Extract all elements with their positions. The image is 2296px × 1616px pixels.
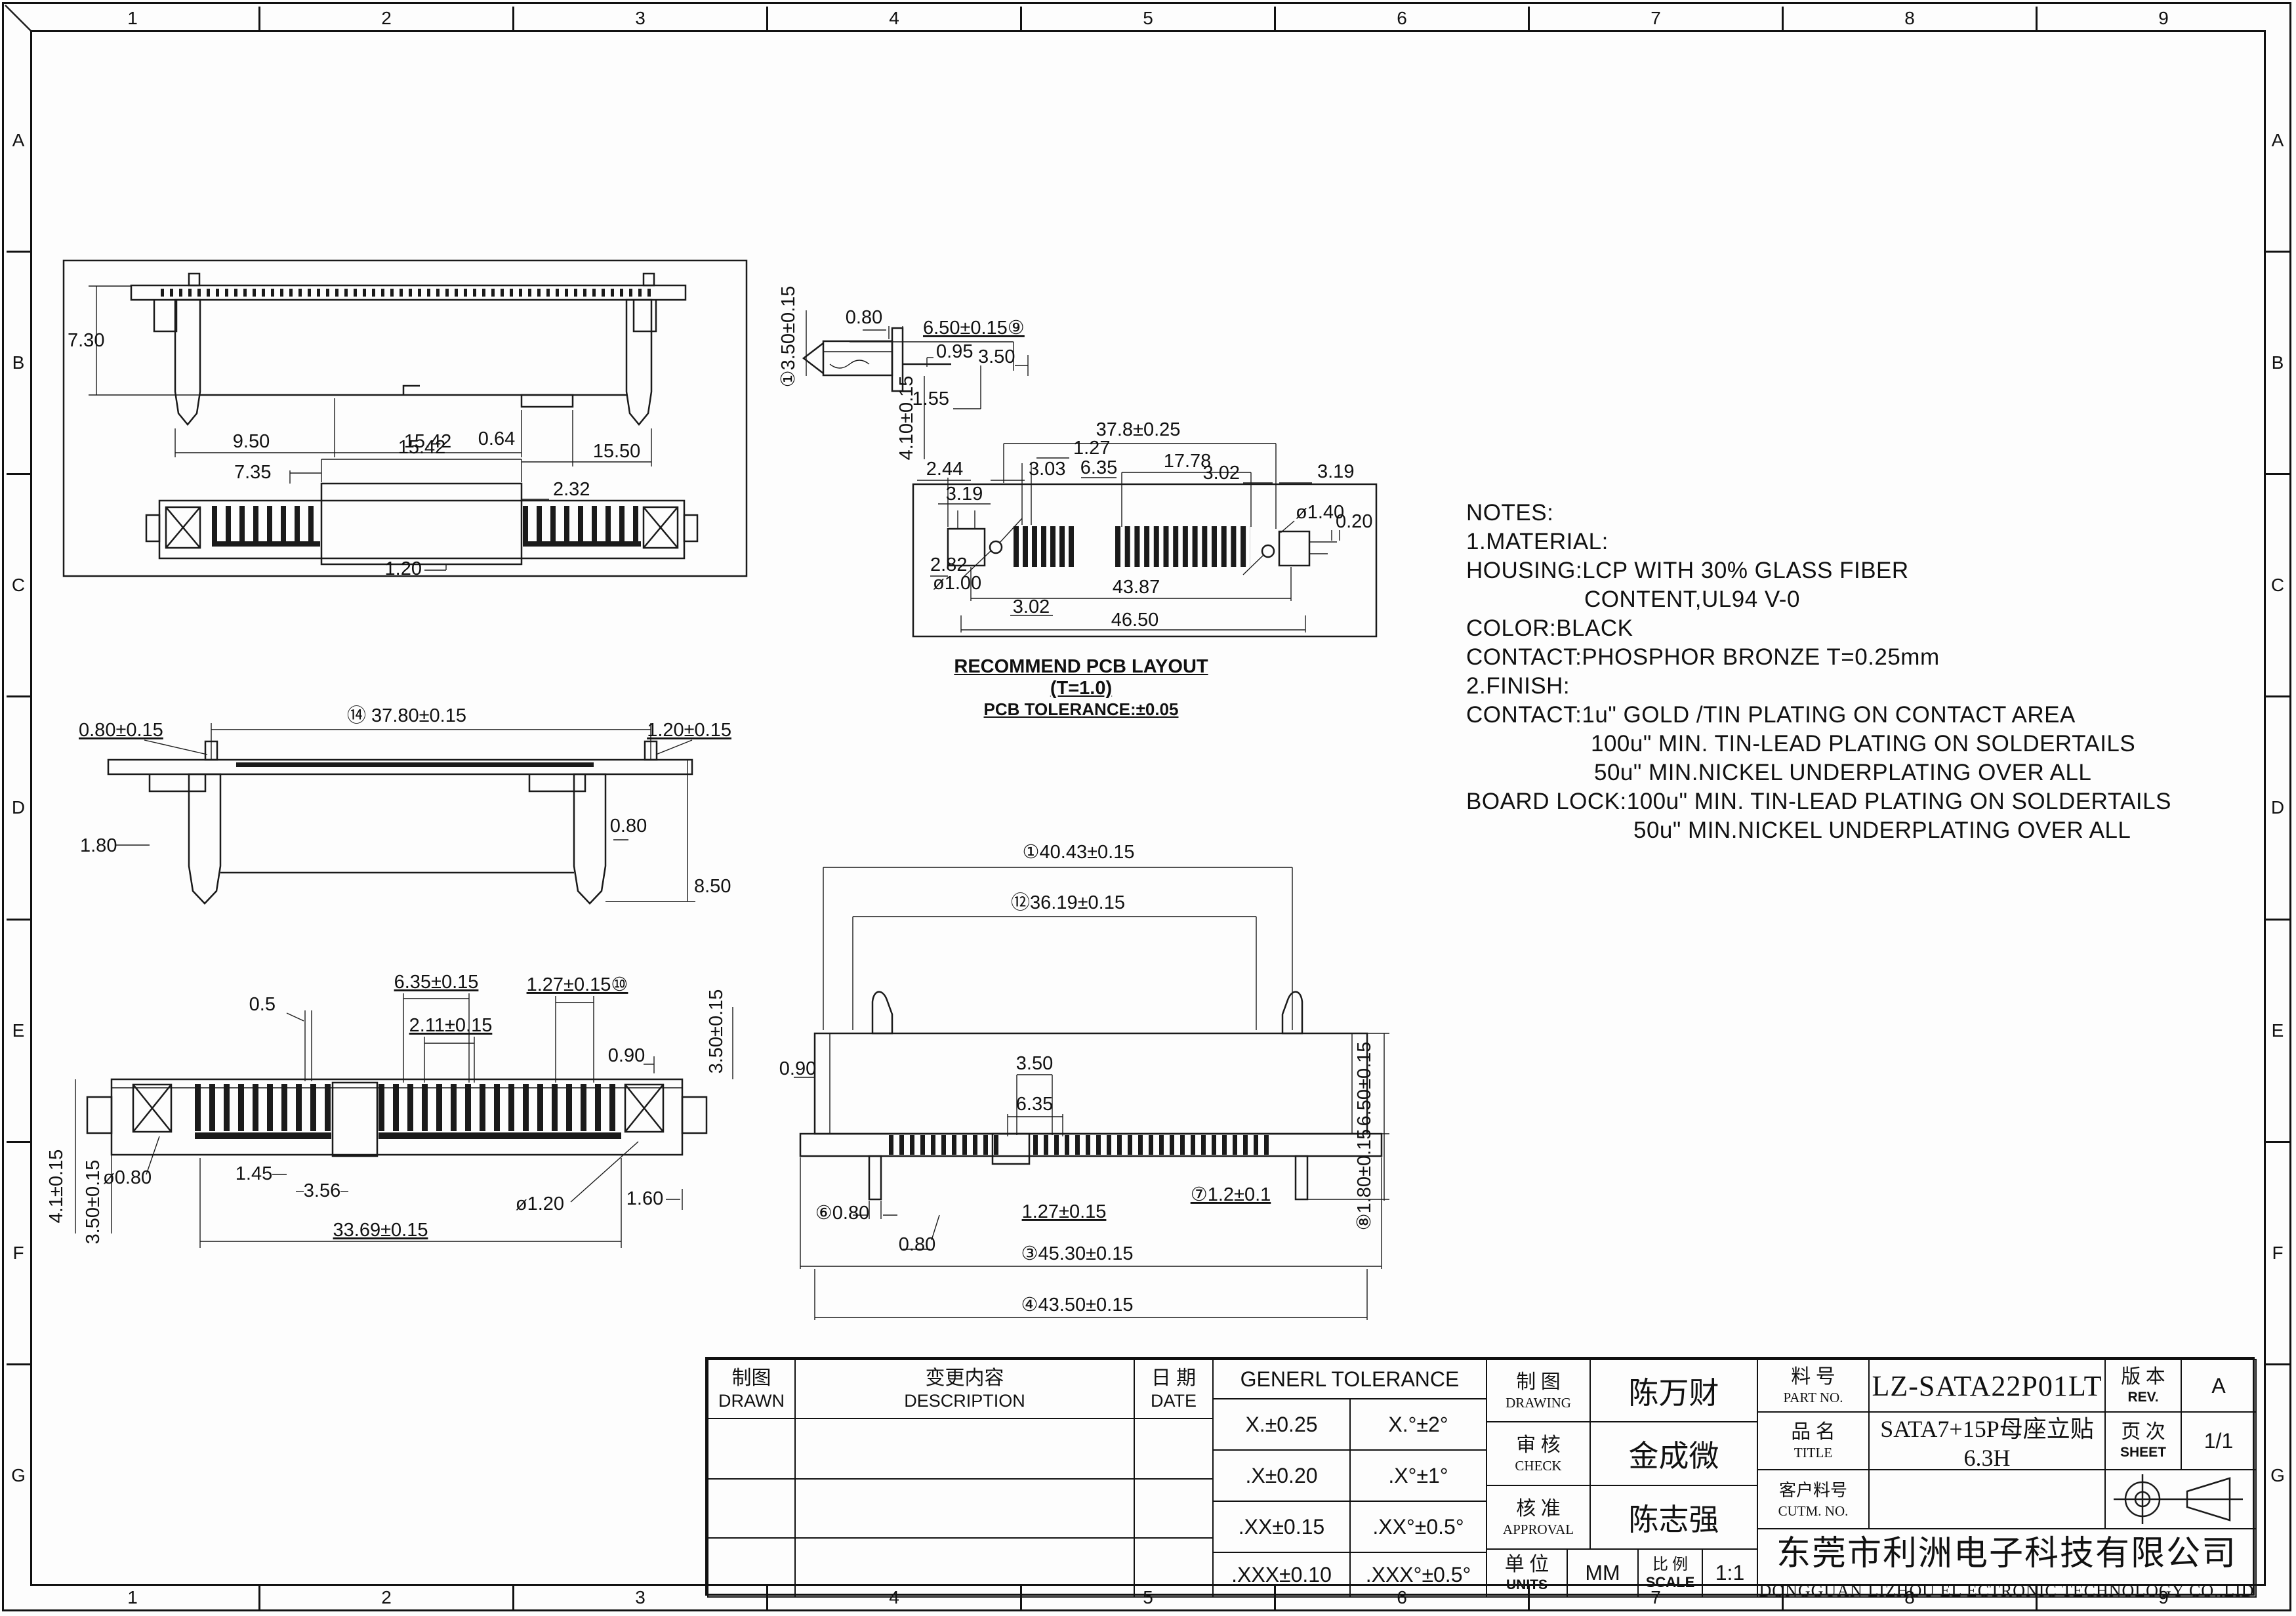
zone-col: 1: [7, 7, 258, 30]
dim-1-45: 1.45: [236, 1163, 272, 1184]
description-label-cn: 变更内容: [926, 1367, 1004, 1390]
tolerance-cell: .XX±0.15: [1212, 1501, 1351, 1553]
cutm-no-label-cn: 客户料号: [1779, 1479, 1847, 1502]
units-label: 单 位 UNITS: [1486, 1548, 1568, 1598]
zone-col: 6: [1274, 7, 1528, 30]
company-name-en: DONGGUAN LIZHOU EL ECTRONIC TECHNOLOGY C…: [1759, 1581, 2255, 1598]
check-label-cn: 审 核: [1516, 1434, 1561, 1457]
dim-dia-1-00: ø1.00: [933, 573, 981, 594]
tolerance-value: .X°±1°: [1388, 1464, 1448, 1488]
note-line: NOTES:: [1466, 499, 2240, 528]
dim-46-50: 46.50: [1111, 610, 1159, 631]
part-no-label: 料 号 PART NO.: [1757, 1359, 1870, 1413]
dim-40-43: ①40.43±0.15: [1023, 842, 1135, 863]
description-header: 变更内容 DESCRIPTION: [794, 1359, 1135, 1419]
dim-4-1: 4.1±0.15: [46, 1150, 67, 1224]
dim-7-35: 7.35: [234, 462, 271, 483]
dim-6-35: 6.35: [1016, 1094, 1053, 1115]
tolerance-header: GENERL TOLERANCE: [1212, 1359, 1487, 1399]
part-number: LZ-SATA22P01LT: [1872, 1369, 2102, 1403]
cutm-no-value: [1868, 1469, 2106, 1529]
drawn-label-en: DRAWN: [718, 1390, 785, 1411]
zone-row: G: [2266, 1363, 2289, 1586]
check-name: 金成微: [1629, 1432, 1719, 1476]
tolerance-cell: X.°±2°: [1349, 1398, 1487, 1451]
dim-3-19-right: 3.19: [1317, 461, 1354, 482]
view-pcb-layout: 37.8±0.25 1.27 3.03 6.35 17.78 3.02 3.19…: [912, 412, 1443, 645]
zone-row: A: [2266, 30, 2289, 251]
dim-1-55: 1.55: [912, 388, 949, 409]
title-label: 品 名 TITLE: [1757, 1411, 1870, 1470]
dim-0-90: 0.90: [608, 1045, 645, 1066]
note-line: 100u" MIN. TIN-LEAD PLATING ON SOLDERTAI…: [1466, 730, 2240, 758]
dim-0-5: 0.5: [249, 994, 276, 1015]
rev-label: 版 本 REV.: [2104, 1359, 2182, 1413]
dim-3-50-left: 3.50±0.15: [83, 1160, 104, 1245]
zone-columns-top: 1 2 3 4 5 6 7 8 9: [7, 7, 2289, 30]
zone-col: 4: [766, 7, 1020, 30]
dim-1-20: 1.20: [385, 558, 422, 579]
dim-2-32: 2.32: [553, 479, 590, 500]
dim-0-80: 0.80: [610, 816, 647, 837]
note-line: COLOR:BLACK: [1466, 614, 2240, 643]
units-value: MM: [1567, 1548, 1639, 1598]
tolerance-value: .X±0.20: [1245, 1464, 1317, 1488]
dim-0-20: 0.20: [1336, 511, 1372, 532]
tolerance-value: X.°±2°: [1388, 1413, 1448, 1437]
scale-label: 比 例 SCALE: [1637, 1548, 1703, 1598]
dim-0-80: 0.80: [846, 307, 882, 328]
check-label-en: CHECK: [1515, 1457, 1561, 1474]
dim-8-50: 8.50: [694, 876, 731, 897]
dim-0-64: 0.64: [478, 428, 515, 449]
revision-cell: [794, 1537, 1135, 1598]
note-line: CONTENT,UL94 V-0: [1466, 585, 2240, 614]
drawing-name: 陈万财: [1629, 1369, 1719, 1413]
dim-33-69: 33.69±0.15: [333, 1220, 428, 1241]
dim-3-56: 3.56: [304, 1180, 340, 1201]
approval-label: 核 准 APPROVAL: [1486, 1485, 1591, 1550]
part-no-value: LZ-SATA22P01LT: [1868, 1359, 2106, 1413]
dim-3-02-bottom: 3.02: [1013, 596, 1050, 617]
view-rear: 0.80±0.15 ⑭ 37.80±0.15 1.20±0.15 1.80 0.…: [39, 676, 735, 902]
tolerance-value: X.±0.25: [1245, 1413, 1317, 1437]
dim-43-87: 43.87: [1113, 577, 1160, 598]
tolerance-cell: .XXX°±0.5°: [1349, 1552, 1487, 1598]
revision: A: [2211, 1374, 2225, 1398]
drawing-value: 陈万财: [1589, 1359, 1758, 1422]
dim-15-42-front: 15.42: [398, 437, 446, 458]
zone-col: 7: [1528, 7, 1782, 30]
sheet-value: 1/1: [2181, 1411, 2257, 1470]
sheet-number: 1/1: [2204, 1429, 2233, 1453]
zone-row: C: [7, 473, 30, 695]
drawing-label-en: DRAWING: [1506, 1394, 1571, 1411]
pcb-geometry: [913, 444, 1376, 636]
dim-0-90: 0.90: [779, 1058, 816, 1079]
dim-3-50-vert: ①3.50±0.15: [778, 286, 799, 388]
scale-label-cn: 比 例: [1652, 1556, 1688, 1574]
zone-row: B: [2266, 251, 2289, 473]
dim-1-80: 1.80: [80, 835, 117, 856]
tolerance-value: .XXX±0.10: [1231, 1563, 1332, 1587]
dim-0-80: 0.80: [899, 1234, 935, 1255]
tolerance-cell: X.±0.25: [1212, 1398, 1351, 1451]
dim-0-80-pin: ⑥0.80: [815, 1203, 869, 1224]
note-line: HOUSING:LCP WITH 30% GLASS FIBER: [1466, 556, 2240, 585]
dim-3-50: 3.50: [1016, 1053, 1053, 1074]
revision-cell: [1134, 1418, 1214, 1480]
revision-cell: [707, 1478, 796, 1539]
cutm-no-label: 客户料号 CUTM. NO.: [1757, 1469, 1870, 1529]
dim-1-80: ⑧1.80±0.15: [1354, 1129, 1375, 1231]
dim-15-50: 15.50: [593, 441, 641, 462]
dim-1-20-tol: 1.20±0.15: [647, 720, 731, 741]
drawn-label-cn: 制图: [732, 1367, 771, 1390]
view-plan: 0.5 6.35±0.15 1.27±0.15⑩ 2.11±0.15 0.90 …: [49, 945, 748, 1270]
drawn-header: 制图 DRAWN: [707, 1359, 796, 1419]
part-no-label-cn: 料 号: [1791, 1365, 1835, 1389]
zone-row: D: [7, 695, 30, 918]
revision-cell: [1134, 1537, 1214, 1598]
dim-3-02-top: 3.02: [1203, 463, 1240, 484]
revision-cell: [707, 1537, 796, 1598]
pcb-caption-line1: RECOMMEND PCB LAYOUT (T=1.0): [924, 656, 1239, 699]
note-line: 2.FINISH:: [1466, 672, 2240, 701]
notes-block: NOTES: 1.MATERIAL: HOUSING:LCP WITH 30% …: [1466, 499, 2240, 845]
dim-6-35: 6.35: [1080, 457, 1117, 478]
dim-1-2: ⑦1.2±0.1: [1191, 1184, 1271, 1205]
tolerance-value: .XXX°±0.5°: [1366, 1563, 1471, 1587]
zone-row: E: [7, 919, 30, 1141]
zone-col: 8: [1782, 7, 2036, 30]
dim-2-11: 2.11±0.15: [409, 1015, 493, 1036]
description-label-en: DESCRIPTION: [904, 1390, 1025, 1411]
approval-value: 陈志强: [1589, 1485, 1758, 1550]
zone-col: 9: [2036, 7, 2289, 30]
revision-cell: [707, 1418, 796, 1480]
dim-6-50: 6.50±0.15: [1354, 1042, 1375, 1127]
part-no-label-en: PART NO.: [1784, 1389, 1843, 1406]
tolerance-title: GENERL TOLERANCE: [1240, 1367, 1460, 1392]
zone-row: A: [7, 30, 30, 251]
dim-2-44: 2.44: [926, 459, 963, 480]
zone-col: 3: [512, 7, 766, 30]
title-label-en: TITLE: [1794, 1444, 1832, 1461]
view-bottom: ①40.43±0.15 ⑫36.19±0.15 6.50±0.15 0.90 3…: [774, 781, 1391, 1332]
dim-45-30: ③45.30±0.15: [1021, 1243, 1134, 1264]
dim-0-95: 0.95: [936, 341, 973, 362]
note-line: 1.MATERIAL:: [1466, 528, 2240, 556]
zone-col: 1: [7, 1586, 258, 1609]
rev-label-en: REV.: [2127, 1389, 2158, 1406]
company-name-cn: 东莞市利洲电子科技有限公司: [1776, 1528, 2237, 1575]
zone-col: 2: [258, 7, 512, 30]
dim-3-19-left: 3.19: [946, 484, 983, 505]
dim-0-80-tol: 0.80±0.15: [79, 720, 163, 741]
rear-geometry: [108, 723, 695, 903]
dim-36-19: ⑫36.19±0.15: [1011, 892, 1125, 913]
view-overview: 7.30 9.50 15.42 0.64 15.50 15.42 7.35 2.…: [62, 259, 748, 577]
dim-dia-0-80: ø0.80: [103, 1167, 152, 1188]
revision-cell: [1134, 1478, 1214, 1539]
dim-1-27: 1.27: [1073, 438, 1110, 459]
zone-row: D: [2266, 695, 2289, 918]
dim-6-50: 6.50±0.15⑨: [923, 318, 1025, 339]
pcb-caption-line2: PCB TOLERANCE:±0.05: [924, 699, 1239, 720]
zone-row: F: [7, 1141, 30, 1363]
dim-6-35: 6.35±0.15: [394, 972, 479, 993]
tolerance-cell: .XXX±0.10: [1212, 1552, 1351, 1598]
dim-1-27: 1.27±0.15⑩: [527, 974, 628, 995]
approval-label-en: APPROVAL: [1503, 1521, 1574, 1538]
check-label: 审 核 CHECK: [1486, 1421, 1591, 1486]
drawing-sheet: 1 2 3 4 5 6 7 8 9 1 2 3 4 5 6 7 8 9 A B …: [0, 0, 2296, 1616]
note-line: 50u" MIN.NICKEL UNDERPLATING OVER ALL: [1466, 816, 2240, 845]
sheet-label-cn: 页 次: [2121, 1420, 2165, 1444]
rev-value: A: [2181, 1359, 2257, 1413]
zone-rows-right: A B C D E F G: [2266, 30, 2289, 1586]
dim-9-50: 9.50: [233, 431, 270, 452]
date-label-cn: 日 期: [1151, 1367, 1196, 1390]
cutm-no-label-en: CUTM. NO.: [1778, 1502, 1849, 1520]
units-mm: MM: [1585, 1561, 1620, 1585]
tolerance-value: .XX°±0.5°: [1372, 1515, 1464, 1539]
part-title: SATA7+15P母座立贴6.3H: [1870, 1411, 2104, 1470]
zone-row: C: [2266, 473, 2289, 695]
title-value: SATA7+15P母座立贴6.3H: [1868, 1411, 2106, 1470]
drawing-label: 制 图 DRAWING: [1486, 1359, 1591, 1422]
rev-label-cn: 版 本: [2121, 1365, 2165, 1389]
projection-symbol-cell: [2104, 1469, 2257, 1529]
overview-geometry: [64, 260, 747, 576]
note-line: CONTACT:1u" GOLD /TIN PLATING ON CONTACT…: [1466, 701, 2240, 730]
dim-37-80: ⑭ 37.80±0.15: [347, 705, 466, 726]
note-line: CONTACT:PHOSPHOR BRONZE T=0.25mm: [1466, 643, 2240, 672]
approval-label-cn: 核 准: [1516, 1497, 1561, 1521]
tolerance-cell: .X°±1°: [1349, 1449, 1487, 1502]
scale-value: 1:1: [1702, 1548, 1758, 1598]
zone-rows-left: A B C D E F G: [7, 30, 30, 1586]
date-header: 日 期 DATE: [1134, 1359, 1214, 1419]
scale-ratio: 1:1: [1715, 1561, 1744, 1585]
dim-3-50-right: 3.50±0.15: [706, 989, 727, 1074]
revision-cell: [794, 1478, 1135, 1539]
check-value: 金成微: [1589, 1421, 1758, 1486]
plan-geometry: [75, 993, 733, 1248]
approval-name: 陈志强: [1629, 1496, 1719, 1539]
dim-7-30: 7.30: [68, 330, 104, 351]
zone-col: 2: [258, 1586, 512, 1609]
scale-label-en: SCALE: [1646, 1574, 1695, 1591]
dim-3-50: 3.50: [978, 346, 1015, 367]
dim-dia-1-20: ø1.20: [516, 1193, 564, 1214]
sheet-label-en: SHEET: [2120, 1444, 2166, 1461]
units-label-en: UNITS: [1506, 1577, 1548, 1594]
title-block: 制图 DRAWN 变更内容 DESCRIPTION 日 期 DATE GENER…: [705, 1357, 2255, 1596]
revision-cell: [794, 1418, 1135, 1480]
tolerance-cell: .XX°±0.5°: [1349, 1501, 1487, 1553]
units-label-cn: 单 位: [1505, 1553, 1549, 1577]
zone-row: F: [2266, 1141, 2289, 1363]
sheet-label: 页 次 SHEET: [2104, 1411, 2182, 1470]
pcb-caption: RECOMMEND PCB LAYOUT (T=1.0) PCB TOLERAN…: [924, 656, 1239, 720]
tolerance-cell: .X±0.20: [1212, 1449, 1351, 1502]
title-label-cn: 品 名: [1791, 1420, 1835, 1444]
date-label-en: DATE: [1151, 1390, 1197, 1411]
dim-43-50: ④43.50±0.15: [1021, 1295, 1134, 1316]
third-angle-projection-icon: [2108, 1472, 2253, 1527]
zone-row: G: [7, 1363, 30, 1586]
dim-3-03: 3.03: [1029, 459, 1065, 480]
company-cell: 东莞市利洲电子科技有限公司 DONGGUAN LIZHOU EL ECTRONI…: [1757, 1528, 2257, 1598]
note-line: 50u" MIN.NICKEL UNDERPLATING OVER ALL: [1466, 758, 2240, 787]
note-line: BOARD LOCK:100u" MIN. TIN-LEAD PLATING O…: [1466, 787, 2240, 816]
zone-row: E: [2266, 919, 2289, 1141]
dim-1-27: 1.27±0.15: [1022, 1201, 1107, 1222]
dim-1-60: 1.60: [626, 1188, 663, 1209]
zone-row: B: [7, 251, 30, 473]
tolerance-value: .XX±0.15: [1239, 1515, 1324, 1539]
drawing-label-cn: 制 图: [1516, 1371, 1561, 1394]
zone-col: 5: [1020, 7, 1274, 30]
